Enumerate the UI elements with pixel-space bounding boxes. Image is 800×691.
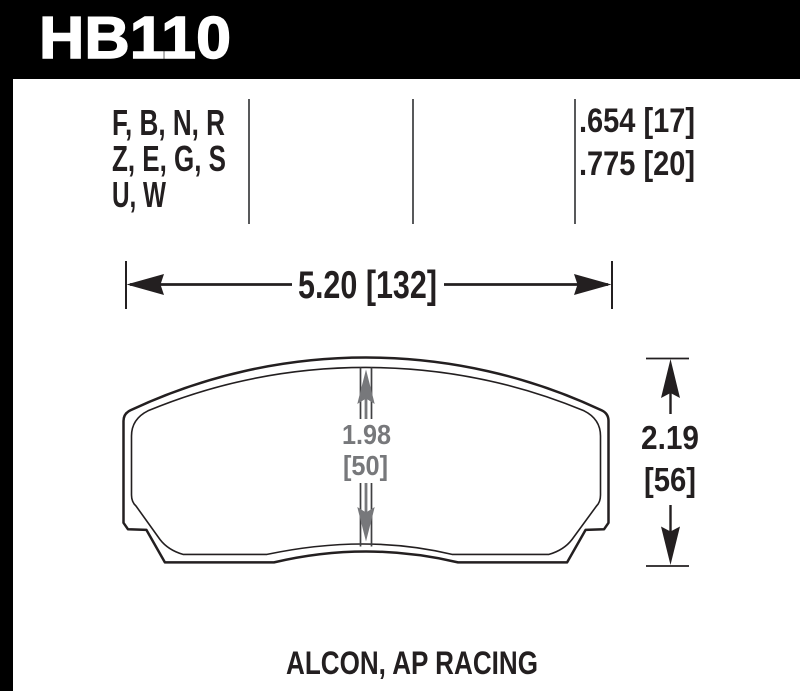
svg-text:HB110: HB110 [39, 5, 231, 71]
svg-text:ALCON, AP RACING: ALCON, AP RACING [286, 645, 538, 681]
svg-text:[50]: [50] [343, 450, 388, 481]
svg-text:2.19: 2.19 [641, 419, 699, 456]
svg-text:5.20 [132]: 5.20 [132] [298, 264, 437, 307]
svg-text:U, W: U, W [112, 174, 166, 215]
svg-text:[56]: [56] [644, 461, 696, 498]
svg-text:Z, E, G, S: Z, E, G, S [112, 138, 226, 179]
svg-text:.654 [17]: .654 [17] [579, 102, 695, 140]
svg-text:F, B, N, R: F, B, N, R [112, 102, 225, 143]
svg-text:.775 [20]: .775 [20] [579, 145, 695, 183]
svg-text:1.98: 1.98 [342, 419, 391, 450]
